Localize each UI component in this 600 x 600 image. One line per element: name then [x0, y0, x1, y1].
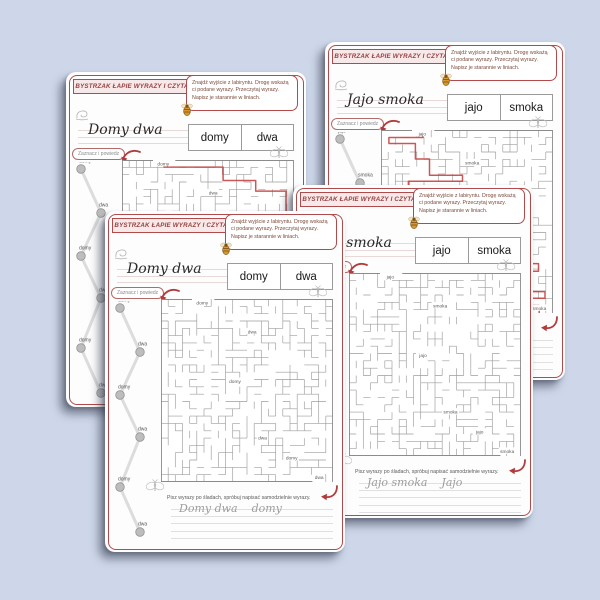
snail-doodle-icon — [333, 78, 349, 92]
traced-words: Jajo smoka Jajo — [367, 476, 462, 489]
svg-text:dwa: dwa — [138, 342, 147, 348]
svg-text:domy: domy — [229, 379, 241, 385]
instruction-box: Znajdź wyjście z labiryntu. Drogę wskażą… — [225, 214, 337, 250]
instruction-text: Znajdź wyjście z labiryntu. Drogę wskażą… — [451, 50, 548, 71]
handwriting-sample-lines: Domy dwa — [78, 124, 190, 150]
snail-doodle-icon — [74, 108, 90, 122]
instruction-box: Znajdź wyjście z labiryntu. Drogę wskażą… — [445, 45, 557, 81]
instruction-text: Znajdź wyjście z labiryntu. Drogę wskażą… — [192, 80, 289, 101]
word-chain: domydwadomydwadomydwa — [107, 301, 165, 543]
svg-text:jajo: jajo — [386, 274, 395, 280]
svg-text:jajo: jajo — [418, 131, 427, 137]
svg-text:smoka: smoka — [443, 410, 457, 416]
svg-text:smoka: smoka — [532, 306, 546, 312]
svg-text:dwa: dwa — [138, 427, 147, 433]
bee-icon — [180, 102, 194, 117]
svg-text:domy: domy — [118, 477, 131, 483]
svg-text:dwa: dwa — [99, 203, 108, 209]
handwriting-sample-word: Domy dwa — [127, 261, 202, 277]
bee-icon — [439, 72, 453, 87]
svg-text:smoka: smoka — [433, 303, 447, 309]
butterfly-icon — [308, 285, 328, 300]
page-header-title: BYSTRZAK ŁAPIE WYRAZY I CZYTA — [302, 196, 415, 203]
svg-text:jajo: jajo — [418, 353, 427, 359]
svg-text:domy: domy — [79, 338, 92, 344]
handwriting-sample-word: Jajo smoka — [347, 92, 424, 108]
svg-text:domy: domy — [79, 246, 92, 252]
instruction-box: Znajdź wyjście z labiryntu. Drogę wskażą… — [186, 75, 298, 111]
svg-text:dwa: dwa — [209, 190, 218, 196]
svg-text:dwa: dwa — [248, 329, 257, 335]
butterfly-icon — [269, 146, 289, 161]
page-header: BYSTRZAK ŁAPIE WYRAZY I CZYTA — [300, 192, 418, 207]
svg-text:domy: domy — [157, 161, 169, 167]
maze: domydwadomydwadomydwa — [161, 299, 333, 482]
page-header: BYSTRZAK ŁAPIE WYRAZY I CZYTA — [112, 218, 230, 233]
bottom-instruction: Pisz wyrazy po śladach, spróbuj napisać … — [355, 469, 523, 475]
trace-writing-lines: Domy dwa domy — [171, 502, 333, 546]
page-header: BYSTRZAK ŁAPIE WYRAZY I CZYTA — [332, 49, 450, 64]
svg-text:smoka: smoka — [358, 173, 373, 179]
word-box-1: domy — [228, 264, 280, 289]
svg-text:dwa: dwa — [315, 475, 324, 481]
svg-text:dwa: dwa — [138, 522, 147, 528]
page-header-title: BYSTRZAK ŁAPIE WYRAZY I CZYTA — [114, 222, 227, 229]
instruction-box: Znajdź wyjście z labiryntu. Drogę wskażą… — [413, 188, 525, 224]
desk-background: BYSTRZAK ŁAPIE WYRAZY I CZYTA Znajdź wyj… — [0, 0, 600, 600]
svg-text:smoka: smoka — [465, 160, 479, 166]
word-box-1: domy — [189, 125, 241, 150]
bee-icon — [407, 215, 421, 230]
word-box-1: jajo — [416, 238, 468, 263]
word-box-1: jajo — [448, 95, 500, 120]
svg-text:domy: domy — [118, 385, 131, 391]
bottom-instruction: Pisz wyrazy po śladach, spróbuj napisać … — [167, 495, 335, 501]
traced-words: Domy dwa domy — [179, 502, 282, 515]
butterfly-icon — [145, 479, 165, 494]
handwriting-sample-word: Domy dwa — [88, 122, 163, 138]
bee-icon — [219, 241, 233, 256]
svg-text:dwa: dwa — [258, 436, 267, 442]
svg-text:domy: domy — [196, 300, 208, 306]
instruction-text: Znajdź wyjście z labiryntu. Drogę wskażą… — [231, 219, 328, 240]
butterfly-icon — [496, 259, 516, 274]
instruction-text: Znajdź wyjście z labiryntu. Drogę wskażą… — [419, 193, 516, 214]
butterfly-icon — [528, 116, 548, 131]
snail-doodle-icon — [113, 247, 129, 261]
page-header-title: BYSTRZAK ŁAPIE WYRAZY I CZYTA — [75, 83, 188, 90]
handwriting-sample-lines: Domy dwa — [117, 263, 229, 289]
page-header-title: BYSTRZAK ŁAPIE WYRAZY I CZYTA — [334, 53, 447, 60]
svg-text:smoka: smoka — [500, 449, 514, 455]
svg-text:domy: domy — [79, 162, 92, 165]
svg-text:domy: domy — [286, 456, 298, 462]
handwriting-sample-lines: Jajo smoka — [337, 94, 449, 120]
svg-text:domy: domy — [118, 301, 131, 304]
svg-text:jajo: jajo — [337, 132, 346, 135]
page-header: BYSTRZAK ŁAPIE WYRAZY I CZYTA — [73, 79, 191, 94]
worksheet-page[interactable]: BYSTRZAK ŁAPIE WYRAZY I CZYTA Znajdź wyj… — [105, 211, 345, 552]
svg-text:jajo: jajo — [475, 430, 484, 436]
maze: jajosmokajajosmokajajosmoka — [349, 273, 521, 456]
trace-writing-lines: Jajo smoka Jajo — [359, 476, 521, 520]
